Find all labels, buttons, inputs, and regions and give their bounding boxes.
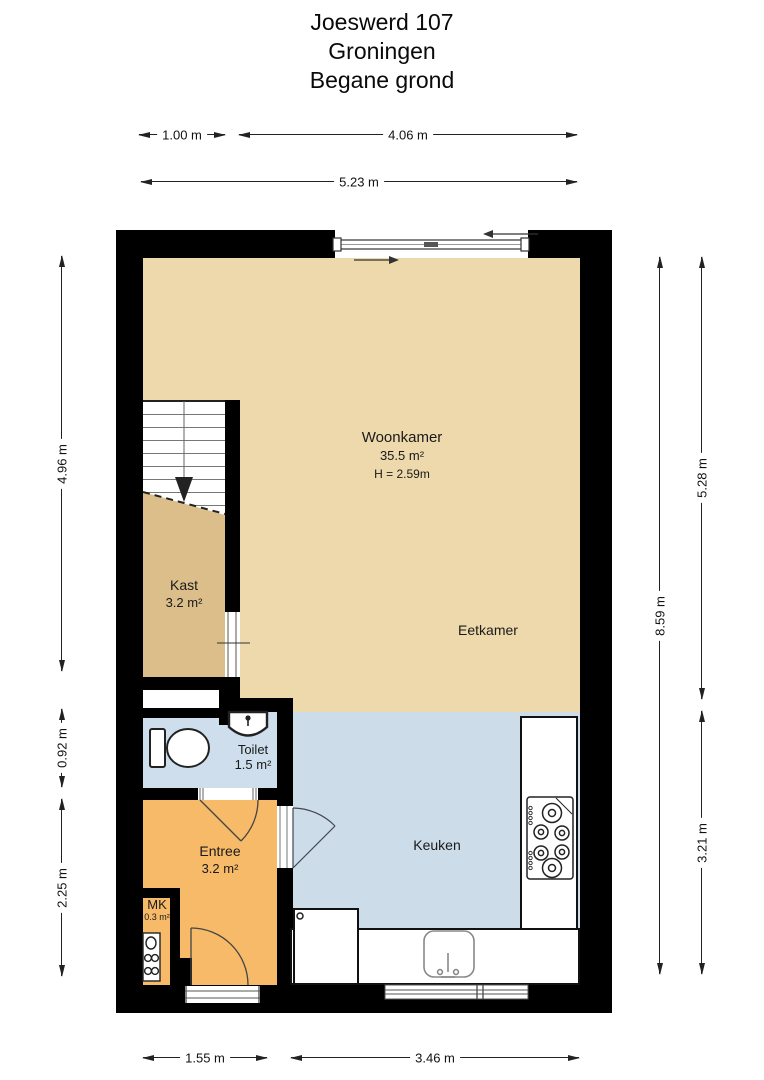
floorplan-page: Joeswerd 107 Groningen Begane grond <box>0 0 764 1080</box>
dim-label: 1.55 m <box>180 1051 230 1066</box>
keuken-name: Keuken <box>413 836 460 854</box>
dim-label: 5.23 m <box>334 175 384 190</box>
kitchen-counter-right <box>520 716 578 930</box>
dim-left-middle: 0.92 m <box>55 708 69 788</box>
dim-label: 2.25 m <box>55 863 70 913</box>
label-toilet: Toilet 1.5 m² <box>235 742 272 772</box>
kast-name: Kast <box>166 576 203 594</box>
title-city: Groningen <box>0 37 764 66</box>
wall-niche <box>143 690 219 708</box>
dim-top-total: 5.23 m <box>140 175 578 189</box>
dim-left-upper: 4.96 m <box>55 255 69 672</box>
dim-right-total: 8.59 m <box>653 256 667 975</box>
kitchen-appliance <box>293 908 359 985</box>
dim-right-upper: 5.28 m <box>695 256 709 700</box>
woonkamer-area: 35.5 m² <box>362 447 443 465</box>
toilet-name: Toilet <box>235 742 272 757</box>
mk-name: MK <box>144 898 170 911</box>
sliding-door <box>333 238 529 251</box>
woonkamer-name: Woonkamer <box>362 429 443 447</box>
toilet-doorway <box>198 788 258 800</box>
wall-top-left <box>116 230 335 258</box>
wall-toilet-entree-left <box>143 788 198 800</box>
wall-stairs-right <box>225 400 240 612</box>
dim-right-lower: 3.21 m <box>695 710 709 975</box>
wall-niche-right <box>219 690 240 725</box>
title-address: Joeswerd 107 <box>0 8 764 37</box>
title-floor: Begane grond <box>0 66 764 95</box>
wall-frontdoor-jamb <box>170 958 192 985</box>
wall-under-kast <box>143 677 240 690</box>
dim-label: 5.28 m <box>695 453 710 503</box>
dim-bottom-left: 1.55 m <box>142 1051 268 1065</box>
dim-label: 4.06 m <box>383 128 433 143</box>
wall-left <box>116 230 143 1013</box>
toilet-area: 1.5 m² <box>235 757 272 772</box>
label-woonkamer: Woonkamer 35.5 m² H = 2.59m <box>362 429 443 483</box>
kast-area: 3.2 m² <box>166 594 203 612</box>
dim-label: 0.92 m <box>55 723 70 773</box>
eetkamer-name: Eetkamer <box>458 621 518 639</box>
entree-name: Entree <box>199 842 240 860</box>
plan-title: Joeswerd 107 Groningen Begane grond <box>0 8 764 95</box>
dim-left-lower: 2.25 m <box>55 798 69 977</box>
wall-toilet-entree-right <box>258 788 290 800</box>
label-entree: Entree 3.2 m² <box>199 842 240 878</box>
label-mk: MK 0.3 m² <box>144 898 170 924</box>
dim-label: 1.00 m <box>157 128 207 143</box>
dim-label: 3.46 m <box>410 1051 460 1066</box>
dim-label: 8.59 m <box>653 591 668 641</box>
label-keuken: Keuken <box>413 836 460 854</box>
dim-top-segment-right: 4.06 m <box>238 128 578 142</box>
dim-top-segment-left: 1.00 m <box>138 128 226 142</box>
wall-right <box>580 230 612 1013</box>
label-eetkamer: Eetkamer <box>458 621 518 639</box>
woonkamer-ceiling-height: H = 2.59m <box>362 465 443 483</box>
wall-bottom <box>116 985 612 1013</box>
label-kast: Kast 3.2 m² <box>166 576 203 612</box>
dim-bottom-right: 3.46 m <box>290 1051 580 1065</box>
wall-toilet-top-left <box>143 708 219 718</box>
entree-area: 3.2 m² <box>199 860 240 878</box>
dim-label: 4.96 m <box>55 439 70 489</box>
kitchen-doorway <box>277 806 293 868</box>
mk-area: 0.3 m² <box>144 911 170 924</box>
dim-label: 3.21 m <box>695 818 710 868</box>
kast-doorway <box>225 612 240 677</box>
